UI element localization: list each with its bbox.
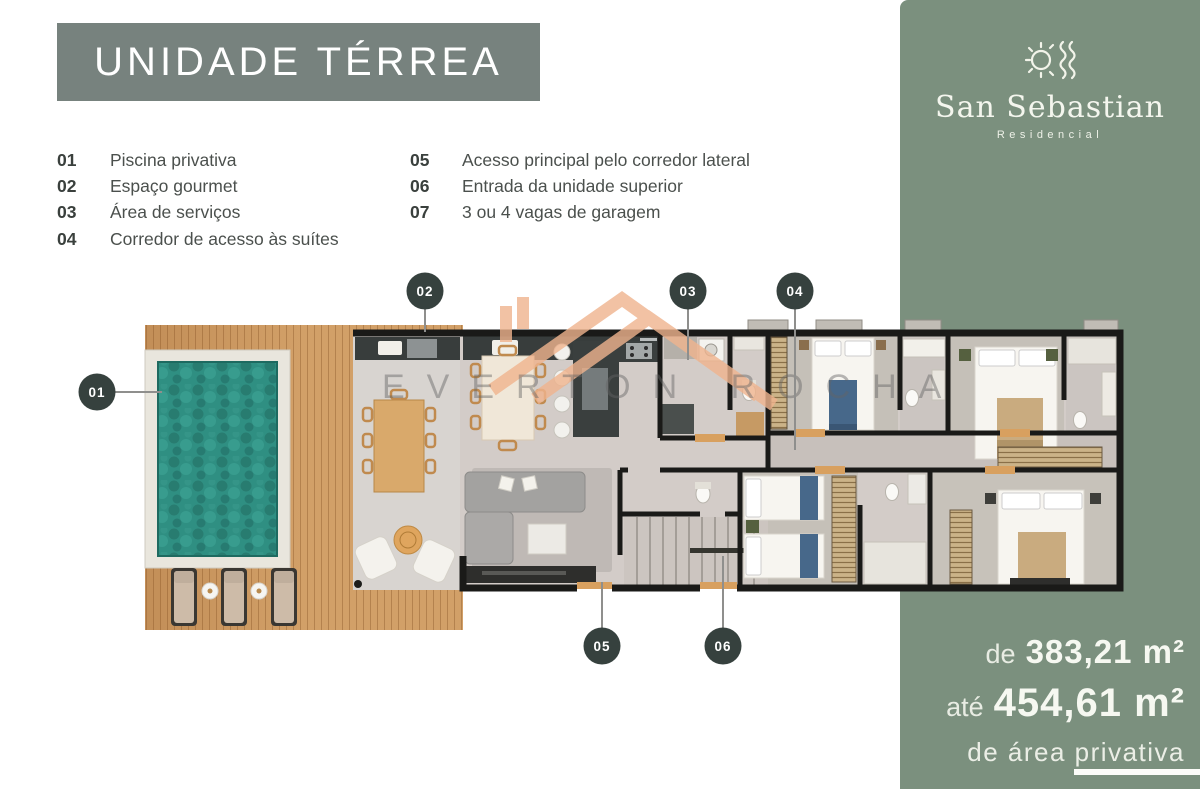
page-title: UNIDADE TÉRREA bbox=[94, 40, 503, 85]
svg-text:01: 01 bbox=[88, 385, 105, 400]
plan-marker-03: 03 bbox=[670, 273, 707, 310]
legend-column-2: 05 Acesso principal pelo corredor latera… bbox=[410, 147, 750, 226]
plan-marker-01: 01 bbox=[79, 374, 116, 411]
legend-label: Piscina privativa bbox=[110, 150, 236, 171]
legend-label: Espaço gourmet bbox=[110, 176, 237, 197]
legend-item: 04 Corredor de acesso às suítes bbox=[57, 226, 339, 252]
plan-marker-04: 04 bbox=[777, 273, 814, 310]
legend-item: 05 Acesso principal pelo corredor latera… bbox=[410, 147, 750, 173]
legend-num: 02 bbox=[57, 176, 110, 197]
legend-label: Área de serviços bbox=[110, 202, 240, 223]
legend-item: 01 Piscina privativa bbox=[57, 147, 339, 173]
svg-text:03: 03 bbox=[679, 284, 696, 299]
pool bbox=[145, 350, 290, 568]
brochure-page: San Sebastian Residencial de383,21 m² at… bbox=[0, 0, 1200, 789]
legend-num: 01 bbox=[57, 150, 110, 171]
legend-num: 07 bbox=[410, 202, 462, 223]
legend-label: Corredor de acesso às suítes bbox=[110, 229, 339, 250]
plan-marker-02: 02 bbox=[407, 273, 444, 310]
watermark-text: EVERTON ROCHA bbox=[382, 368, 963, 406]
legend-label: Acesso principal pelo corredor lateral bbox=[462, 150, 750, 171]
svg-text:06: 06 bbox=[714, 639, 731, 654]
title-banner: UNIDADE TÉRREA bbox=[57, 23, 540, 101]
legend-num: 06 bbox=[410, 176, 462, 197]
legend-num: 05 bbox=[410, 150, 462, 171]
svg-text:04: 04 bbox=[786, 284, 803, 299]
legend-column-1: 01 Piscina privativa 02 Espaço gourmet 0… bbox=[57, 147, 339, 252]
plan-marker-06: 06 bbox=[705, 628, 742, 665]
legend-num: 04 bbox=[57, 229, 110, 250]
svg-text:05: 05 bbox=[593, 639, 610, 654]
living-room bbox=[464, 468, 612, 583]
legend-label: Entrada da unidade superior bbox=[462, 176, 683, 197]
floor-plan: EVERTON ROCHA 01 02 03 bbox=[0, 0, 1200, 789]
legend-label: 3 ou 4 vagas de garagem bbox=[462, 202, 660, 223]
legend-num: 03 bbox=[57, 202, 110, 223]
sun-loungers bbox=[171, 568, 297, 626]
plan-marker-05: 05 bbox=[584, 628, 621, 665]
legend-item: 02 Espaço gourmet bbox=[57, 173, 339, 199]
legend-item: 06 Entrada da unidade superior bbox=[410, 173, 750, 199]
svg-text:02: 02 bbox=[416, 284, 433, 299]
legend-item: 03 Área de serviços bbox=[57, 200, 339, 226]
legend-item: 07 3 ou 4 vagas de garagem bbox=[410, 200, 750, 226]
